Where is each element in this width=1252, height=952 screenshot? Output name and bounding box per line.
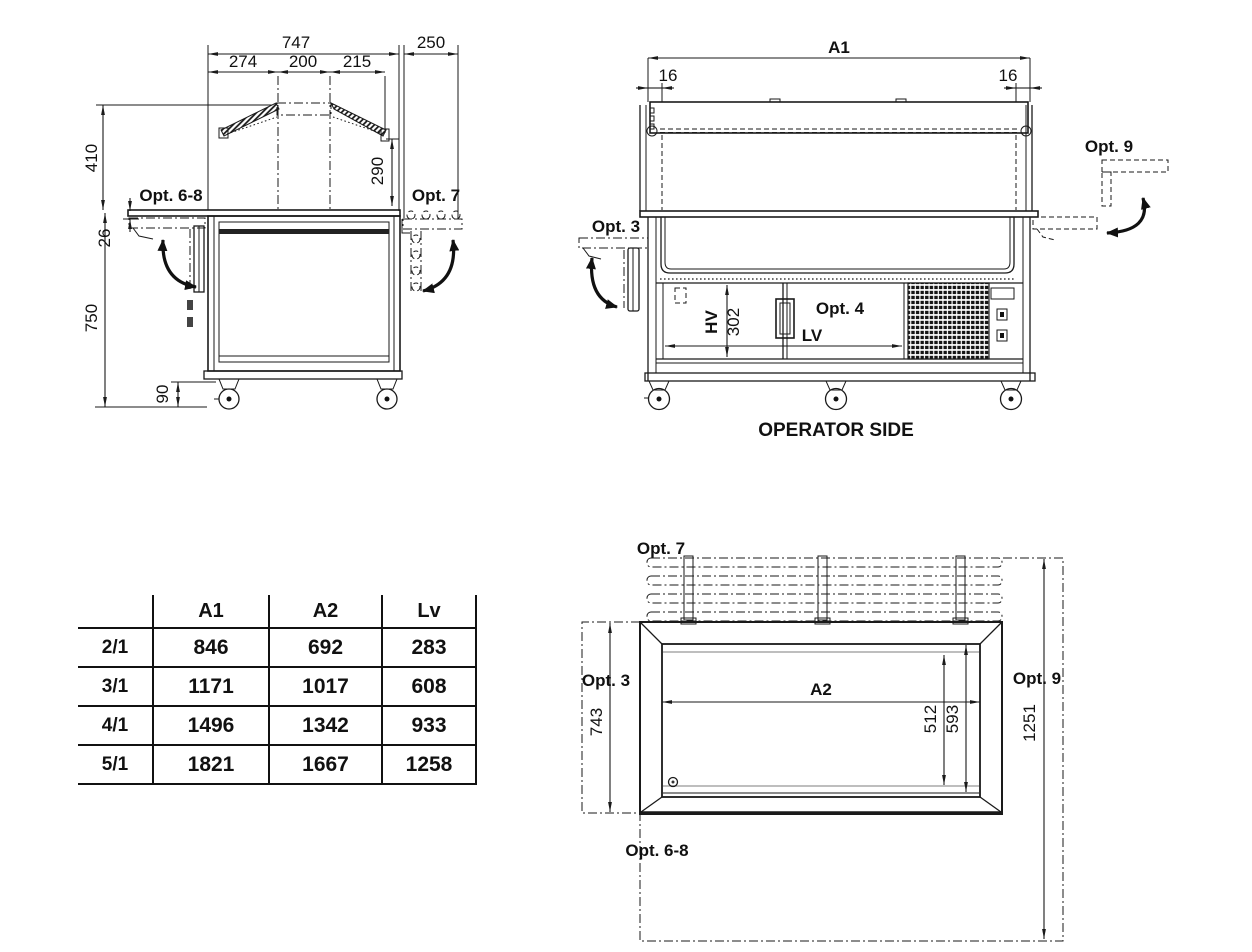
label-opt-6-8: Opt. 6-8: [139, 186, 202, 205]
dim-200: 200: [289, 52, 317, 71]
cell-lv: 608: [382, 667, 476, 706]
well-tub: [660, 217, 1015, 279]
dim-a2: A2: [810, 680, 832, 699]
option-zones: [582, 558, 1063, 941]
dim-16-right: 16: [999, 66, 1018, 85]
dim-410: 410: [82, 144, 101, 172]
tray-rail-right: [402, 211, 462, 294]
caster-icon: [214, 379, 239, 409]
table-row: 2/1 846 692 283: [78, 628, 476, 667]
row-label: 4/1: [78, 706, 153, 745]
label-opt-7: Opt. 7: [412, 186, 460, 205]
row-label: 5/1: [78, 745, 153, 784]
operator-side-caption: OPERATOR SIDE: [758, 420, 914, 441]
cell-a2: 1342: [269, 706, 382, 745]
table-row: 3/1 1171 1017 608: [78, 667, 476, 706]
display-window: [991, 288, 1014, 299]
row-label: 3/1: [78, 667, 153, 706]
cell-a1: 1496: [153, 706, 269, 745]
caster-icon: [1001, 381, 1022, 410]
label-opt-9-plan: Opt. 9: [1013, 669, 1061, 688]
line-art: 747 250 274 200 215 410 26 290 750 90: [0, 0, 1252, 952]
dim-1251: 1251: [1020, 704, 1039, 742]
folding-shelf-left: [129, 218, 205, 292]
cart-body: [187, 216, 402, 379]
fold-arrow-icon: [592, 258, 617, 307]
cell-lv: 1258: [382, 745, 476, 784]
front-view: A1 16 16: [579, 38, 1168, 441]
dim-747: 747: [282, 33, 310, 52]
countertop: [640, 211, 1038, 217]
cell-a1: 846: [153, 628, 269, 667]
dim-lv: LV: [802, 326, 823, 345]
dim-90: 90: [153, 385, 172, 404]
table-row: 5/1 1821 1667 1258: [78, 745, 476, 784]
label-opt-3: Opt. 3: [592, 217, 640, 236]
caster-icon: [644, 381, 670, 410]
sneeze-guard-glass: [219, 103, 389, 141]
compartment-doors: [663, 283, 904, 359]
label-opt-4: Opt. 4: [816, 299, 865, 318]
control-panel: [989, 283, 1014, 359]
cell-lv: 933: [382, 706, 476, 745]
col-header-a2: A2: [269, 595, 382, 628]
glass-superstructure: [640, 99, 1032, 211]
caster-icon: [826, 381, 847, 410]
caster-icon: [377, 379, 397, 409]
dim-a1: A1: [828, 38, 850, 57]
dim-16-left: 16: [659, 66, 678, 85]
dim-743: 743: [587, 708, 606, 736]
door-handle: [776, 299, 794, 338]
label-opt-7-plan: Opt. 7: [637, 539, 685, 558]
side-view: 747 250 274 200 215 410 26 290 750 90: [82, 33, 462, 409]
dim-hv: HV: [702, 310, 721, 334]
countertop: [128, 210, 400, 216]
cell-lv: 283: [382, 628, 476, 667]
tray-rail-plan: [647, 556, 1002, 624]
dim-26: 26: [95, 229, 114, 248]
fold-arrow-icon: [163, 240, 196, 287]
dim-593: 593: [943, 705, 962, 733]
cell-a2: 1017: [269, 667, 382, 706]
row-label: 2/1: [78, 628, 153, 667]
label-opt-9: Opt. 9: [1085, 137, 1133, 156]
lock-icon: [675, 288, 686, 303]
folding-shelf-opt3: [579, 238, 648, 311]
dim-512: 512: [921, 705, 940, 733]
label-opt-3-plan: Opt. 3: [582, 671, 630, 690]
label-opt-6-8-plan: Opt. 6-8: [625, 841, 688, 860]
table-header-row: A1 A2 Lv: [78, 595, 476, 628]
col-header-a1: A1: [153, 595, 269, 628]
dim-302: 302: [724, 308, 743, 336]
fold-arrow-icon: [1107, 198, 1145, 233]
col-header-lv: Lv: [382, 595, 476, 628]
cell-a2: 692: [269, 628, 382, 667]
technical-drawing-sheet: 747 250 274 200 215 410 26 290 750 90: [0, 0, 1252, 952]
condenser-grille: [908, 283, 989, 359]
cell-a1: 1821: [153, 745, 269, 784]
dim-290: 290: [368, 157, 387, 185]
fold-arrow-icon: [423, 240, 454, 291]
corner-cell: [78, 595, 153, 628]
dim-274: 274: [229, 52, 257, 71]
dim-750: 750: [82, 304, 101, 332]
cell-a2: 1667: [269, 745, 382, 784]
size-table: A1 A2 Lv 2/1 846 692 283 3/1 1171 1017 6…: [78, 595, 477, 785]
table-row: 4/1 1496 1342 933: [78, 706, 476, 745]
dim-250: 250: [417, 33, 445, 52]
top-view: Opt. 7 A2 512 593 743 1251: [582, 539, 1063, 941]
folding-shelf-opt9: [1033, 160, 1168, 240]
cell-a1: 1171: [153, 667, 269, 706]
dim-215: 215: [343, 52, 371, 71]
